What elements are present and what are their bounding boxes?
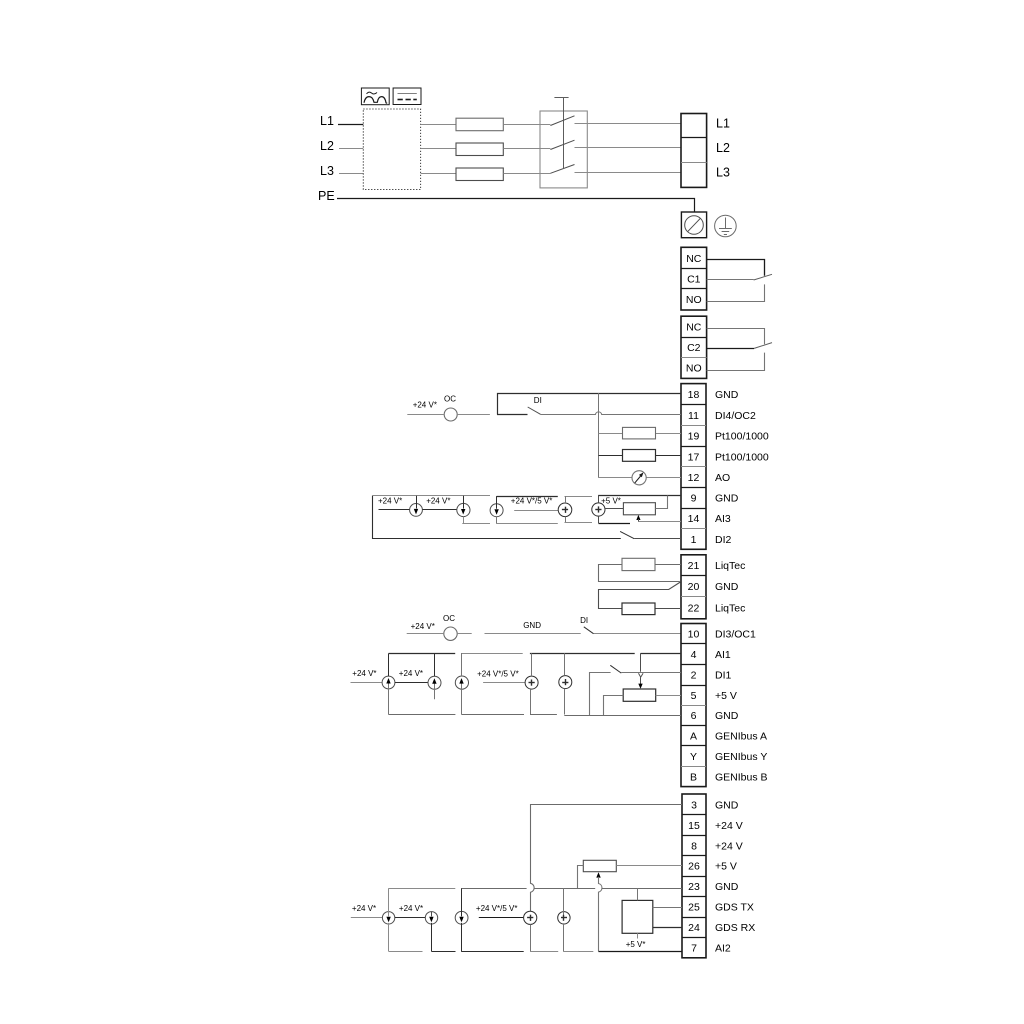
svg-text:L1: L1 [716, 117, 730, 131]
svg-text:5: 5 [691, 690, 697, 702]
svg-text:+24 V*: +24 V* [378, 497, 402, 506]
svg-text:10: 10 [688, 629, 700, 641]
svg-text:AO: AO [715, 472, 730, 484]
svg-text:L1: L1 [320, 114, 334, 128]
svg-text:8: 8 [691, 840, 697, 852]
svg-text:NO: NO [686, 363, 702, 375]
svg-text:18: 18 [688, 389, 700, 401]
svg-text:L2: L2 [320, 139, 334, 153]
svg-text:AI2: AI2 [715, 942, 731, 954]
svg-text:25: 25 [688, 902, 700, 914]
svg-text:+5 V: +5 V [715, 861, 737, 873]
svg-text:GENIbus Y: GENIbus Y [715, 751, 767, 763]
svg-text:+24 V*: +24 V* [352, 904, 376, 913]
svg-text:PE: PE [318, 189, 335, 203]
svg-text:GND: GND [715, 389, 739, 401]
svg-text:OC: OC [443, 614, 455, 623]
svg-text:C1: C1 [687, 274, 701, 286]
svg-text:AI3: AI3 [715, 513, 731, 525]
svg-text:GND: GND [715, 710, 739, 722]
svg-text:1: 1 [691, 534, 697, 546]
svg-text:GENIbus B: GENIbus B [715, 771, 768, 783]
svg-text:22: 22 [688, 603, 700, 615]
svg-text:GENIbus A: GENIbus A [715, 730, 767, 742]
svg-text:19: 19 [688, 431, 700, 443]
svg-text:+24 V: +24 V [715, 820, 743, 832]
svg-text:NO: NO [686, 294, 702, 306]
svg-text:NC: NC [686, 321, 702, 333]
svg-text:+24 V*: +24 V* [399, 904, 423, 913]
svg-text:DI1: DI1 [715, 670, 732, 682]
svg-text:Pt100/1000: Pt100/1000 [715, 451, 769, 463]
svg-text:GND: GND [715, 881, 739, 893]
svg-text:+5 V: +5 V [715, 690, 737, 702]
svg-text:B: B [690, 771, 697, 783]
svg-text:LiqTec: LiqTec [715, 603, 745, 615]
svg-text:+24 V*: +24 V* [411, 622, 435, 631]
svg-text:21: 21 [688, 560, 700, 572]
svg-text:GND: GND [715, 493, 739, 505]
svg-text:+5 V*: +5 V* [601, 497, 621, 506]
svg-text:GND: GND [523, 621, 541, 630]
svg-text:L3: L3 [716, 166, 730, 180]
svg-text:+24 V*: +24 V* [352, 669, 376, 678]
svg-text:GDS RX: GDS RX [715, 922, 755, 934]
svg-text:DI: DI [580, 616, 588, 625]
svg-text:4: 4 [691, 649, 697, 661]
svg-text:GDS TX: GDS TX [715, 902, 754, 914]
svg-text:3: 3 [691, 799, 697, 811]
svg-text:A: A [690, 730, 697, 742]
svg-text:LiqTec: LiqTec [715, 560, 745, 572]
svg-text:DI4/OC2: DI4/OC2 [715, 410, 756, 422]
svg-text:+24 V*/5 V*: +24 V*/5 V* [477, 670, 519, 679]
svg-text:+24 V*/5 V*: +24 V*/5 V* [511, 497, 553, 506]
svg-text:24: 24 [688, 922, 700, 934]
svg-text:+5 V*: +5 V* [626, 940, 646, 949]
svg-text:11: 11 [688, 410, 699, 422]
svg-text:L2: L2 [716, 141, 730, 155]
svg-text:NC: NC [686, 253, 702, 265]
svg-text:GND: GND [715, 799, 739, 811]
svg-text:L3: L3 [320, 164, 334, 178]
svg-text:Y: Y [690, 751, 697, 763]
svg-text:Pt100/1000: Pt100/1000 [715, 431, 769, 443]
svg-text:6: 6 [691, 710, 697, 722]
svg-text:17: 17 [688, 451, 700, 463]
svg-text:+24 V*: +24 V* [413, 400, 437, 409]
svg-text:C2: C2 [687, 342, 701, 354]
svg-text:+24 V*: +24 V* [426, 497, 450, 506]
svg-text:12: 12 [688, 472, 700, 484]
svg-text:AI1: AI1 [715, 649, 731, 661]
svg-text:15: 15 [688, 820, 700, 832]
svg-text:+24 V: +24 V [715, 840, 743, 852]
svg-text:DI2: DI2 [715, 534, 732, 546]
svg-text:20: 20 [688, 581, 700, 593]
svg-text:OC: OC [444, 394, 456, 403]
svg-text:GND: GND [715, 581, 739, 593]
svg-text:DI: DI [534, 396, 542, 405]
svg-text:DI3/OC1: DI3/OC1 [715, 629, 756, 641]
svg-text:26: 26 [688, 861, 700, 873]
svg-text:+24 V*: +24 V* [399, 669, 423, 678]
svg-text:2: 2 [691, 670, 697, 682]
svg-text:7: 7 [691, 942, 697, 954]
svg-text:14: 14 [688, 513, 700, 525]
svg-text:+24 V*/5 V*: +24 V*/5 V* [476, 904, 518, 913]
svg-text:9: 9 [691, 493, 697, 505]
svg-text:23: 23 [688, 881, 700, 893]
